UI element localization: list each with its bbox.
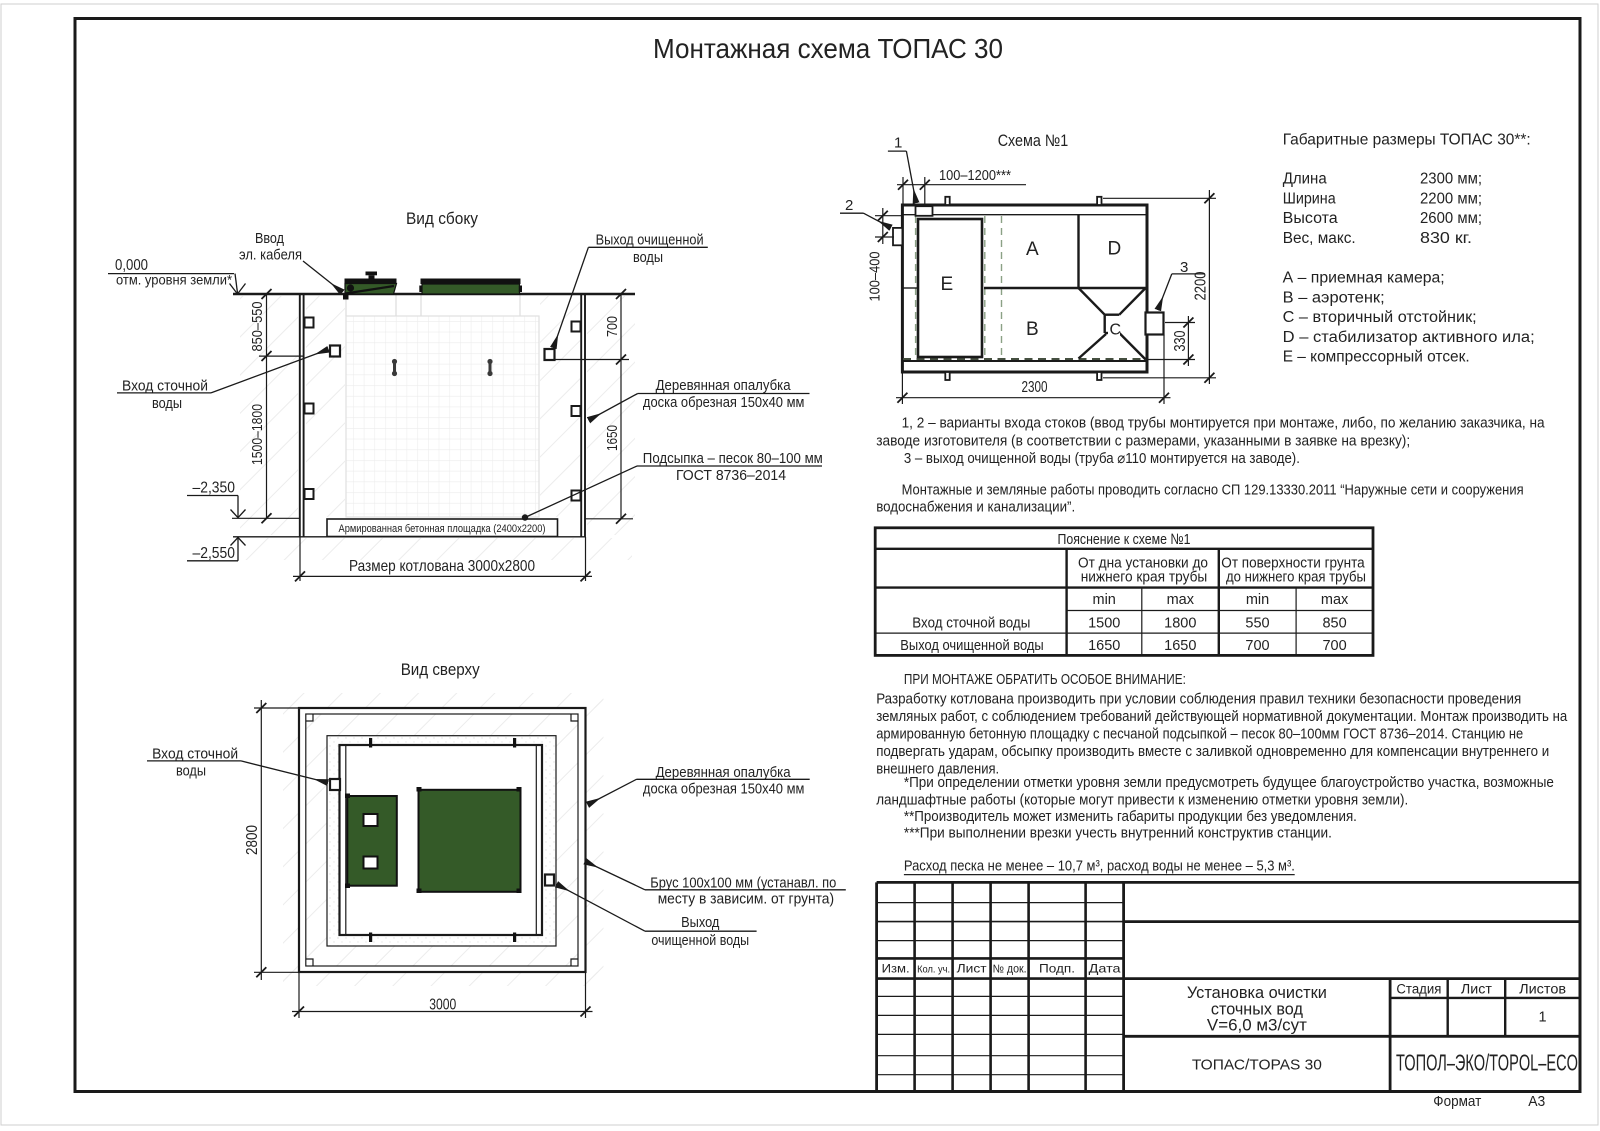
svg-text:Армированная бетонная площадка: Армированная бетонная площадка (2400х220… bbox=[339, 523, 546, 535]
svg-text:Высота: Высота bbox=[1283, 210, 1338, 227]
svg-text:Установка очистки: Установка очистки bbox=[1187, 984, 1327, 1002]
svg-text:Вход сточной: Вход сточной bbox=[152, 747, 238, 763]
svg-text:Е: Е bbox=[941, 274, 954, 295]
svg-text:ГОСТ 8736–2014: ГОСТ 8736–2014 bbox=[676, 468, 786, 484]
svg-text:1800: 1800 bbox=[1164, 616, 1196, 632]
svg-text:850–550: 850–550 bbox=[249, 302, 266, 352]
svg-text:очищенной воды: очищенной воды bbox=[651, 933, 749, 949]
svg-text:В: В bbox=[1026, 319, 1039, 340]
svg-text:2600 мм;: 2600 мм; bbox=[1420, 210, 1482, 227]
svg-text:месту в зависим. от грунта): месту в зависим. от грунта) bbox=[658, 892, 834, 908]
svg-text:земляных работ, с соблюдением: земляных работ, с соблюдением требований… bbox=[876, 708, 1568, 725]
svg-text:Е – компрессорный отсек.: Е – компрессорный отсек. bbox=[1283, 349, 1470, 366]
svg-text:Выход очищенной: Выход очищенной bbox=[596, 233, 704, 249]
svg-text:Дата: Дата bbox=[1089, 962, 1121, 976]
svg-text:700: 700 bbox=[604, 316, 621, 337]
svg-text:Подсыпка – песок 80–100 мм: Подсыпка – песок 80–100 мм bbox=[643, 451, 823, 467]
svg-text:Лист: Лист bbox=[957, 962, 988, 976]
svg-text:1650: 1650 bbox=[1088, 638, 1120, 654]
svg-text:830 кг.: 830 кг. bbox=[1420, 230, 1472, 247]
svg-text:до нижнего края трубы: до нижнего края трубы bbox=[1226, 570, 1366, 586]
svg-text:Лист: Лист bbox=[1461, 982, 1492, 997]
svg-text:нижнего края трубы: нижнего края трубы bbox=[1081, 570, 1208, 586]
svg-text:D: D bbox=[1108, 239, 1122, 260]
svg-text:А – приемная камера;: А – приемная камера; bbox=[1283, 270, 1445, 287]
svg-text:Вид сбоку: Вид сбоку bbox=[406, 210, 479, 228]
svg-text:1: 1 bbox=[1539, 1010, 1547, 1026]
svg-text:водоснабжения и канализации”.: водоснабжения и канализации”. bbox=[876, 499, 1075, 516]
svg-text:–2,550: –2,550 bbox=[193, 545, 236, 562]
svg-text:Размер котлована 3000х2800: Размер котлована 3000х2800 bbox=[349, 558, 535, 575]
svg-text:С: С bbox=[1110, 322, 1122, 339]
svg-text:2300 мм;: 2300 мм; bbox=[1420, 171, 1482, 188]
svg-text:1650: 1650 bbox=[1164, 638, 1196, 654]
svg-text:А3: А3 bbox=[1528, 1093, 1545, 1110]
svg-text:В – аэротенк;: В – аэротенк; bbox=[1283, 289, 1385, 306]
svg-text:max: max bbox=[1321, 592, 1349, 608]
svg-text:воды: воды bbox=[633, 250, 663, 266]
svg-text:Монтажная схема ТОПАС 30: Монтажная схема ТОПАС 30 bbox=[653, 33, 1003, 64]
svg-text:100–1200***: 100–1200*** bbox=[939, 168, 1011, 184]
svg-text:Длина: Длина bbox=[1283, 171, 1327, 188]
svg-text:воды: воды bbox=[152, 396, 182, 412]
svg-text:1: 1 bbox=[894, 135, 902, 152]
svg-text:армированную бетонную площадку: армированную бетонную площадку с песчано… bbox=[876, 726, 1523, 743]
svg-text:1650: 1650 bbox=[604, 425, 621, 451]
svg-text:заводе изготовителя (в соответ: заводе изготовителя (в соответствии с ра… bbox=[876, 433, 1410, 450]
svg-text:Подп.: Подп. bbox=[1039, 962, 1075, 976]
svg-text:ландшафтные работы (которые мо: ландшафтные работы (которые могут привес… bbox=[876, 792, 1408, 809]
svg-text:***При выполнении врезки учест: ***При выполнении врезки учесть внутренн… bbox=[904, 825, 1332, 842]
svg-text:Изм.: Изм. bbox=[882, 962, 910, 976]
svg-text:2800: 2800 bbox=[244, 825, 261, 855]
svg-text:Вход сточной: Вход сточной bbox=[122, 379, 208, 395]
svg-text:ТОПАС/TOPAS 30: ТОПАС/TOPAS 30 bbox=[1192, 1057, 1322, 1074]
svg-text:Схема №1: Схема №1 bbox=[998, 132, 1068, 150]
svg-text:Деревянная опалубка: Деревянная опалубка bbox=[656, 765, 792, 781]
svg-text:Вес, макс.: Вес, макс. bbox=[1283, 230, 1356, 247]
svg-text:Ввод: Ввод bbox=[255, 231, 284, 247]
svg-text:2200 мм;: 2200 мм; bbox=[1420, 190, 1482, 207]
svg-text:2300: 2300 bbox=[1022, 379, 1048, 396]
svg-text:ПРИ МОНТАЖЕ ОБРАТИТЬ ОСОБОЕ ВН: ПРИ МОНТАЖЕ ОБРАТИТЬ ОСОБОЕ ВНИМАНИЕ: bbox=[904, 671, 1186, 688]
svg-text:доска обрезная 150х40 мм: доска обрезная 150х40 мм bbox=[643, 395, 805, 411]
svg-text:Кол. уч.: Кол. уч. bbox=[917, 964, 950, 976]
svg-text:1500: 1500 bbox=[1088, 616, 1120, 632]
svg-text:100–400: 100–400 bbox=[868, 252, 884, 302]
svg-text:А: А bbox=[1026, 239, 1039, 260]
svg-text:Деревянная опалубка: Деревянная опалубка bbox=[656, 378, 792, 394]
svg-text:700: 700 bbox=[1245, 638, 1269, 654]
svg-text:2: 2 bbox=[845, 197, 853, 214]
svg-text:Стадия: Стадия bbox=[1396, 982, 1441, 997]
svg-text:3000: 3000 bbox=[429, 997, 456, 1014]
svg-text:550: 550 bbox=[1245, 616, 1269, 632]
svg-text:Ширина: Ширина bbox=[1283, 190, 1336, 207]
svg-text:3 – выход очищенной воды (труб: 3 – выход очищенной воды (труба ⌀110 мон… bbox=[904, 450, 1300, 467]
svg-text:D – стабилизатор активного ила: D – стабилизатор активного ила; bbox=[1283, 329, 1535, 346]
svg-text:1500–1800: 1500–1800 bbox=[249, 404, 266, 465]
svg-text:700: 700 bbox=[1322, 638, 1346, 654]
svg-text:max: max bbox=[1167, 592, 1195, 608]
svg-text:0,000: 0,000 bbox=[115, 257, 148, 274]
svg-text:Расход песка не менее – 10,7 м: Расход песка не менее – 10,7 м³, расход … bbox=[904, 858, 1295, 875]
svg-text:Выход: Выход bbox=[681, 915, 720, 931]
svg-text:С – вторичный отстойник;: С – вторичный отстойник; bbox=[1283, 309, 1477, 326]
svg-text:min: min bbox=[1246, 592, 1269, 608]
svg-text:Листов: Листов bbox=[1519, 982, 1566, 997]
svg-text:отм. уровня земли*: отм. уровня земли* bbox=[116, 273, 233, 288]
svg-text:min: min bbox=[1093, 592, 1116, 608]
svg-text:ТОПОЛ–ЭКО/TOPOL–ECO: ТОПОЛ–ЭКО/TOPOL–ECO bbox=[1396, 1050, 1578, 1076]
svg-text:850: 850 bbox=[1322, 616, 1346, 632]
svg-text:Разработку котлована производи: Разработку котлована производить при усл… bbox=[876, 691, 1521, 708]
svg-text:1, 2 – варианты входа стоков: 1, 2 – варианты входа стоков (ввод трубы… bbox=[902, 415, 1546, 432]
svg-text:№ док.: № док. bbox=[993, 964, 1027, 976]
svg-text:–2,350: –2,350 bbox=[193, 480, 236, 497]
svg-text:330: 330 bbox=[1172, 330, 1189, 351]
svg-text:*При определении отметки уровн: *При определении отметки уровня земли пр… bbox=[904, 774, 1554, 791]
svg-text:Пояснение к схеме №1: Пояснение к схеме №1 bbox=[1058, 531, 1191, 548]
svg-text:Монтажные и земляные работы пр: Монтажные и земляные работы проводить со… bbox=[902, 482, 1524, 499]
svg-text:Выход очищенной воды: Выход очищенной воды bbox=[900, 638, 1043, 654]
svg-text:Формат: Формат bbox=[1433, 1093, 1481, 1110]
svg-text:Брус 100х100 мм (устанавл. по: Брус 100х100 мм (устанавл. по bbox=[650, 876, 836, 892]
svg-text:Вход сточной воды: Вход сточной воды bbox=[912, 616, 1030, 632]
svg-text:эл. кабеля: эл. кабеля bbox=[239, 248, 302, 264]
svg-text:2200: 2200 bbox=[1193, 271, 1210, 300]
svg-text:**Производитель может изменить: **Производитель может изменить габариты … bbox=[904, 808, 1357, 825]
svg-text:Вид сверху: Вид сверху bbox=[401, 661, 481, 679]
svg-text:V=6,0 м3/сут: V=6,0 м3/сут bbox=[1207, 1017, 1307, 1035]
svg-text:воды: воды bbox=[176, 764, 206, 780]
svg-text:доска обрезная 150х40 мм: доска обрезная 150х40 мм bbox=[643, 782, 805, 798]
svg-text:Габаритные размеры ТОПАС 30**:: Габаритные размеры ТОПАС 30**: bbox=[1283, 132, 1531, 149]
svg-text:подвергать ударам, обсыпку про: подвергать ударам, обсыпку производить в… bbox=[876, 743, 1549, 760]
